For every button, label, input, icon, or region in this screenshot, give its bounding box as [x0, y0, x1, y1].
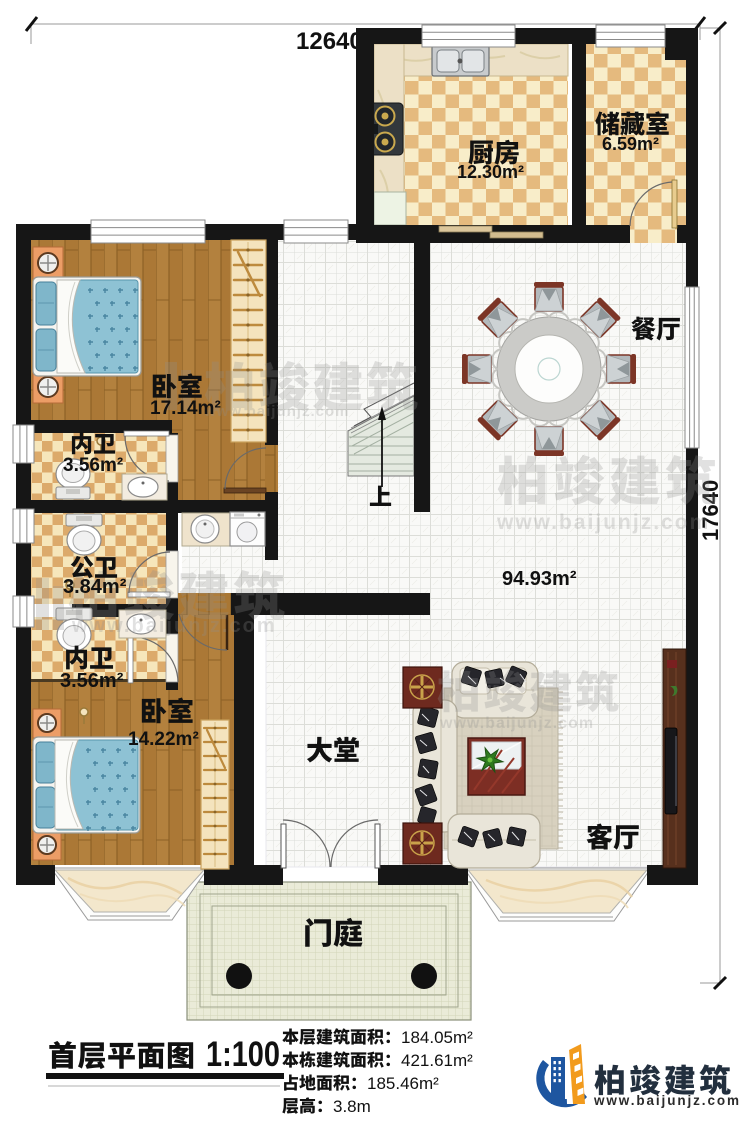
svg-text:94.93m²: 94.93m²	[502, 568, 577, 590]
svg-text:www.baijunjz.com: www.baijunjz.com	[439, 715, 594, 732]
svg-text:184.05m²: 184.05m²	[401, 1028, 473, 1047]
svg-text:3.56m²: 3.56m²	[63, 455, 123, 476]
svg-text:3.8m: 3.8m	[333, 1097, 371, 1116]
svg-text:3.56m²: 3.56m²	[60, 670, 124, 692]
svg-text:12.30m²: 12.30m²	[457, 162, 524, 182]
svg-text:www.baijunjz.com: www.baijunjz.com	[593, 1093, 741, 1108]
svg-text:185.46m²: 185.46m²	[367, 1074, 439, 1093]
svg-text:6.59m²: 6.59m²	[602, 134, 659, 154]
svg-text:www.baijunjz.com: www.baijunjz.com	[203, 403, 349, 420]
svg-text:www.baijunjz.com: www.baijunjz.com	[496, 511, 710, 534]
svg-text:12640: 12640	[296, 28, 363, 55]
svg-text:17.14m²: 17.14m²	[150, 398, 221, 419]
svg-text:www.baijunjz.com: www.baijunjz.com	[71, 615, 277, 637]
svg-text:1:100: 1:100	[206, 1035, 280, 1074]
svg-text:14.22m²: 14.22m²	[128, 729, 199, 750]
svg-text:421.61m²: 421.61m²	[401, 1051, 473, 1070]
svg-text:3.84m²: 3.84m²	[63, 576, 127, 598]
